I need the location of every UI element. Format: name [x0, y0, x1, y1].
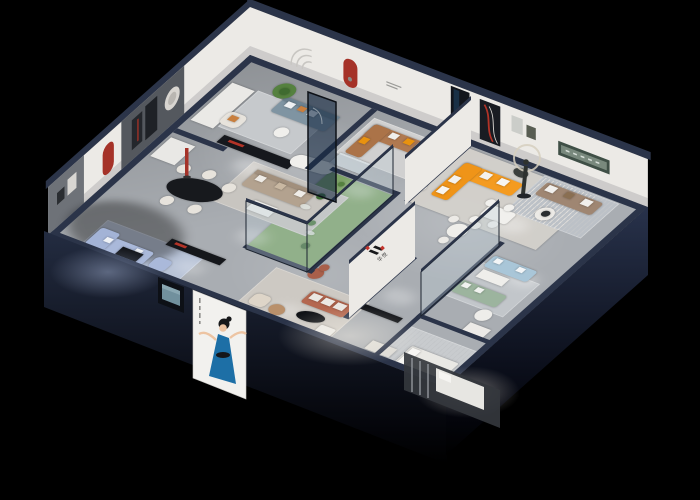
- sculpture-head: [523, 159, 529, 165]
- partition-face: [405, 100, 471, 205]
- poster-text-dash: [199, 298, 201, 303]
- showroom-3d-render: 华悦: [0, 0, 700, 500]
- glass-door-panel: [308, 92, 336, 202]
- glass-partition-east: [421, 199, 499, 316]
- poster-panel: [193, 290, 246, 399]
- red-floor-lamp: [183, 148, 191, 179]
- woman-belt: [216, 352, 230, 358]
- poster-text-dash: [199, 321, 201, 324]
- white-partition-wall: [405, 96, 471, 205]
- poster-text-dash: [199, 313, 201, 318]
- poster-text-dash: [199, 306, 201, 310]
- woman-face: [219, 324, 227, 332]
- woman-hair-bun: [226, 316, 231, 321]
- sculpture-base: [517, 194, 531, 199]
- foreground-layer: 华悦: [0, 0, 700, 500]
- lamp-base: [183, 176, 191, 179]
- lamp-pole: [185, 148, 189, 176]
- periwinkle-room-glow: [50, 246, 166, 298]
- freestanding-glass-door: [308, 92, 336, 202]
- figure-sculpture: [514, 145, 540, 199]
